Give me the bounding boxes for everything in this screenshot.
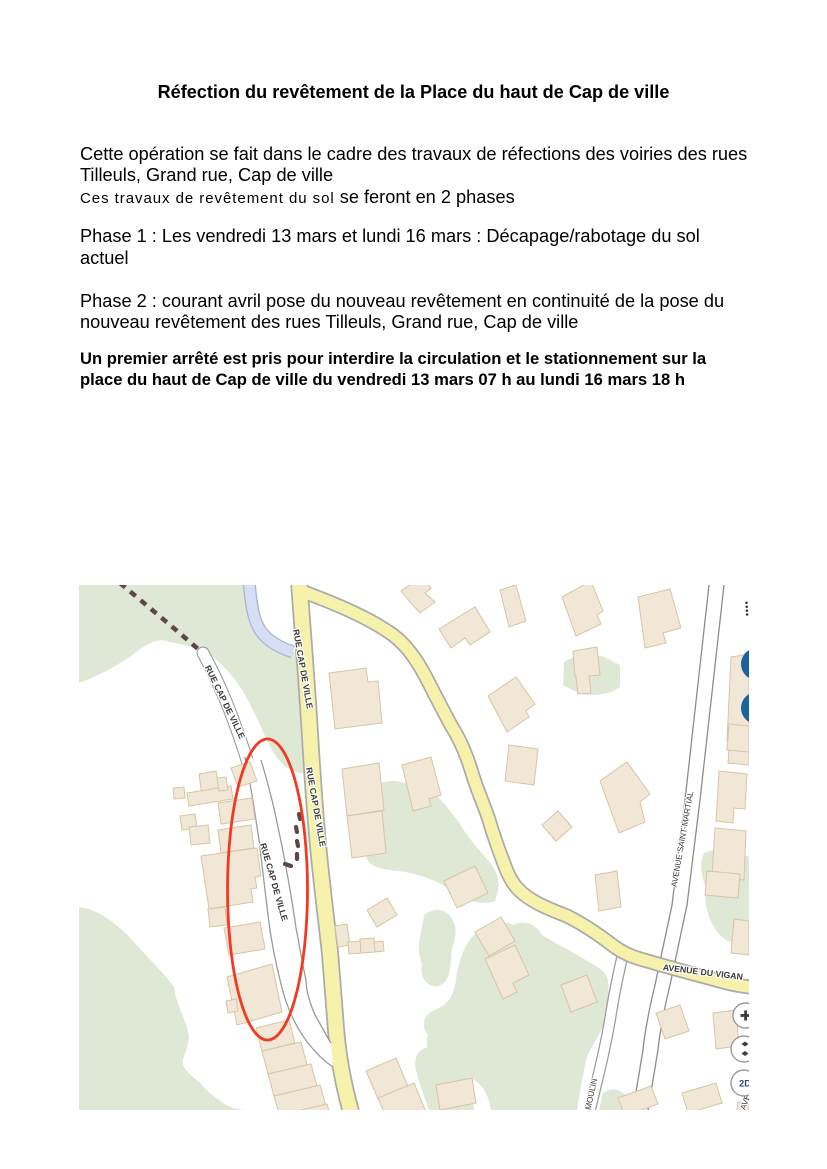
svg-text:2D: 2D <box>739 1079 749 1089</box>
